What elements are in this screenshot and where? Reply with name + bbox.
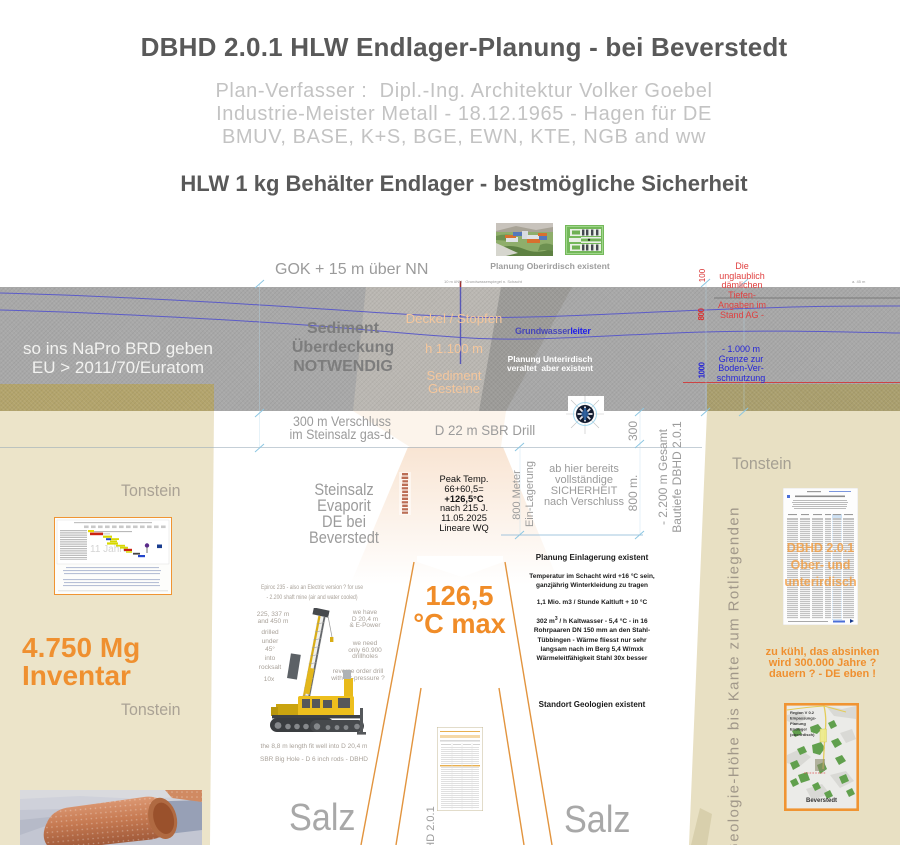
svg-text:Endlager: Endlager xyxy=(790,727,808,732)
svg-text:Region V 0.2: Region V 0.2 xyxy=(790,710,815,715)
svg-text:Beverstedt: Beverstedt xyxy=(806,798,837,804)
svg-text:Einpassungs-: Einpassungs- xyxy=(790,716,817,721)
svg-text:(oberirdisch): (oberirdisch) xyxy=(790,732,815,737)
svg-text:Planung: Planung xyxy=(790,721,806,726)
